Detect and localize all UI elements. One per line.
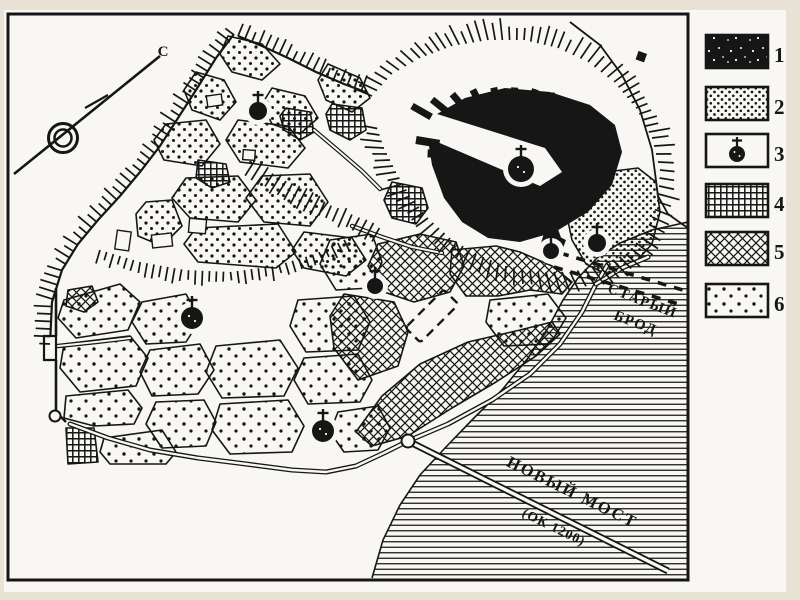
legend-number-6: 6: [774, 292, 785, 316]
legend-swatch-sparse-stipple: [706, 284, 768, 317]
bridge-gate: [402, 435, 415, 448]
legend-swatch-solid-black: [706, 35, 768, 68]
legend-number-1: 1: [774, 43, 785, 67]
north-label: С: [158, 44, 169, 60]
legend-swatch-grid-hatch: [706, 184, 768, 217]
legend-swatch-dense-stipple: [706, 87, 768, 120]
legend-swatch-crosshatch: [706, 232, 768, 265]
scanned-map-page: С СТАРЫЙ БРОД НОВЫЙ МОСТ (ОК 1200) 1 2 3…: [0, 0, 800, 600]
legend-number-4: 4: [774, 192, 785, 216]
legend-number-3: 3: [774, 142, 785, 166]
legend-number-2: 2: [774, 95, 785, 119]
legend-number-5: 5: [774, 240, 785, 264]
historic-town-plan: С СТАРЫЙ БРОД НОВЫЙ МОСТ (ОК 1200) 1 2 3…: [0, 0, 800, 600]
